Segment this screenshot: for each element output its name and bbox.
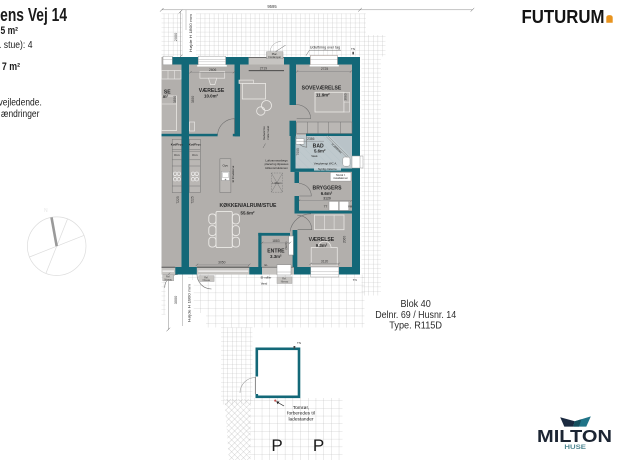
svg-text:Vask.: Vask. [311,154,318,158]
svg-text:loftkonstruktionen: loftkonstruktionen [265,166,288,170]
svg-text:5.6m²: 5.6m² [314,149,326,154]
svg-text:7005: 7005 [296,148,300,156]
svg-text:SOVEVÆRELSE: SOVEVÆRELSE [302,86,342,92]
svg-text:2719: 2719 [260,66,268,70]
svg-text:3.3m²: 3.3m² [270,254,282,259]
svg-text:Udluftning over tag: Udluftning over tag [310,46,340,50]
svg-text:P: P [313,436,324,455]
svg-text:7225: 7225 [190,196,194,204]
svg-text:P: P [271,436,282,455]
svg-text:Vand: Vand [261,281,268,285]
svg-text:ladestander: ladestander [288,416,313,422]
svg-text:El-måler: El-måler [261,275,272,279]
svg-text:N: N [44,208,48,214]
svg-text:2000: 2000 [174,33,178,41]
svg-text:(9x21): (9x21) [284,241,288,249]
svg-text:11.9m²: 11.9m² [316,93,330,98]
svg-text:Delnr. 69 / Husnr. 14: Delnr. 69 / Husnr. 14 [375,310,456,321]
svg-text:2725: 2725 [321,67,329,71]
svg-text:Højde H 1800 mm: Højde H 1800 mm [189,14,193,52]
svg-text:Niveau: Niveau [164,278,172,281]
svg-text:HUSE: HUSE [564,444,586,451]
svg-text:Blok 40: Blok 40 [401,299,432,310]
svg-text:TT: TT [324,205,328,209]
svg-text:6.6m²: 6.6m² [321,191,333,196]
svg-text:9595: 9595 [267,4,277,9]
svg-text:3120: 3120 [323,197,331,201]
svg-text:Køl/Frys: Køl/Frys [171,142,183,146]
svg-text:vejledende.: vejledende. [0,97,42,108]
svg-text:3850: 3850 [173,96,177,104]
svg-text:sens Vej 14: sens Vej 14 [0,4,68,25]
svg-text:installationer: installationer [333,176,348,180]
svg-text:55.6m²: 55.6m² [241,210,255,215]
svg-text:Køl/Frys: Køl/Frys [189,142,201,146]
svg-text:9.3m²: 9.3m² [316,243,328,248]
svg-text:MILTON: MILTON [537,426,612,446]
svg-text:. stue): 4: . stue): 4 [0,40,33,51]
svg-text:i hele huset: i hele huset [266,126,270,141]
svg-text:TN: TN [353,278,357,282]
svg-text:Synlig cisterne: Synlig cisterne [318,167,337,171]
svg-text:Type. R115D: Type. R115D [389,321,442,332]
svg-text:Ovn: Ovn [192,153,198,157]
svg-text:El til køkkenø: El til køkkenø [231,165,235,182]
svg-text:2386: 2386 [307,137,315,141]
svg-text:ændringer: ændringer [1,109,40,120]
svg-text:Fordamper: Fordamper [268,55,281,59]
svg-text:3120: 3120 [321,260,329,264]
svg-text:EL: EL [265,263,269,267]
svg-text:2606: 2606 [209,68,217,72]
svg-text:Væghængt WC A.: Væghængt WC A. [314,162,337,166]
svg-text:1883: 1883 [272,239,280,243]
svg-text:3050: 3050 [218,261,226,265]
svg-text:2060: 2060 [343,236,347,244]
svg-text:: 7 m²: : 7 m² [0,61,20,73]
svg-text:TN: TN [351,47,355,51]
svg-text:3000: 3000 [174,296,178,304]
svg-text:3850: 3850 [191,96,195,104]
svg-text:Niveau: Niveau [281,280,289,283]
svg-text:Tomrør,: Tomrør, [293,405,309,411]
svg-text:Opv: Opv [222,163,228,167]
svg-text:TN: TN [297,341,301,345]
svg-text:Ovn: Ovn [174,153,180,157]
svg-text:Loftlem: Loftlem [272,181,282,185]
svg-text:5 m²: 5 m² [1,25,19,37]
svg-text:m²: m² [163,94,169,99]
svg-text:FUTURUM: FUTURUM [522,6,605,27]
svg-text:7225: 7225 [176,196,180,204]
svg-text:forberedes til: forberedes til [287,411,315,417]
svg-text:KØKKEN/ALRUM/STUE: KØKKEN/ALRUM/STUE [220,203,277,209]
svg-text:10.0m²: 10.0m² [204,94,218,99]
svg-text:3689: 3689 [343,93,347,101]
svg-text:Højde H 1800 mm: Højde H 1800 mm [187,284,191,322]
svg-text:Niveau: Niveau [203,279,211,282]
svg-text:VM: VM [348,205,353,209]
